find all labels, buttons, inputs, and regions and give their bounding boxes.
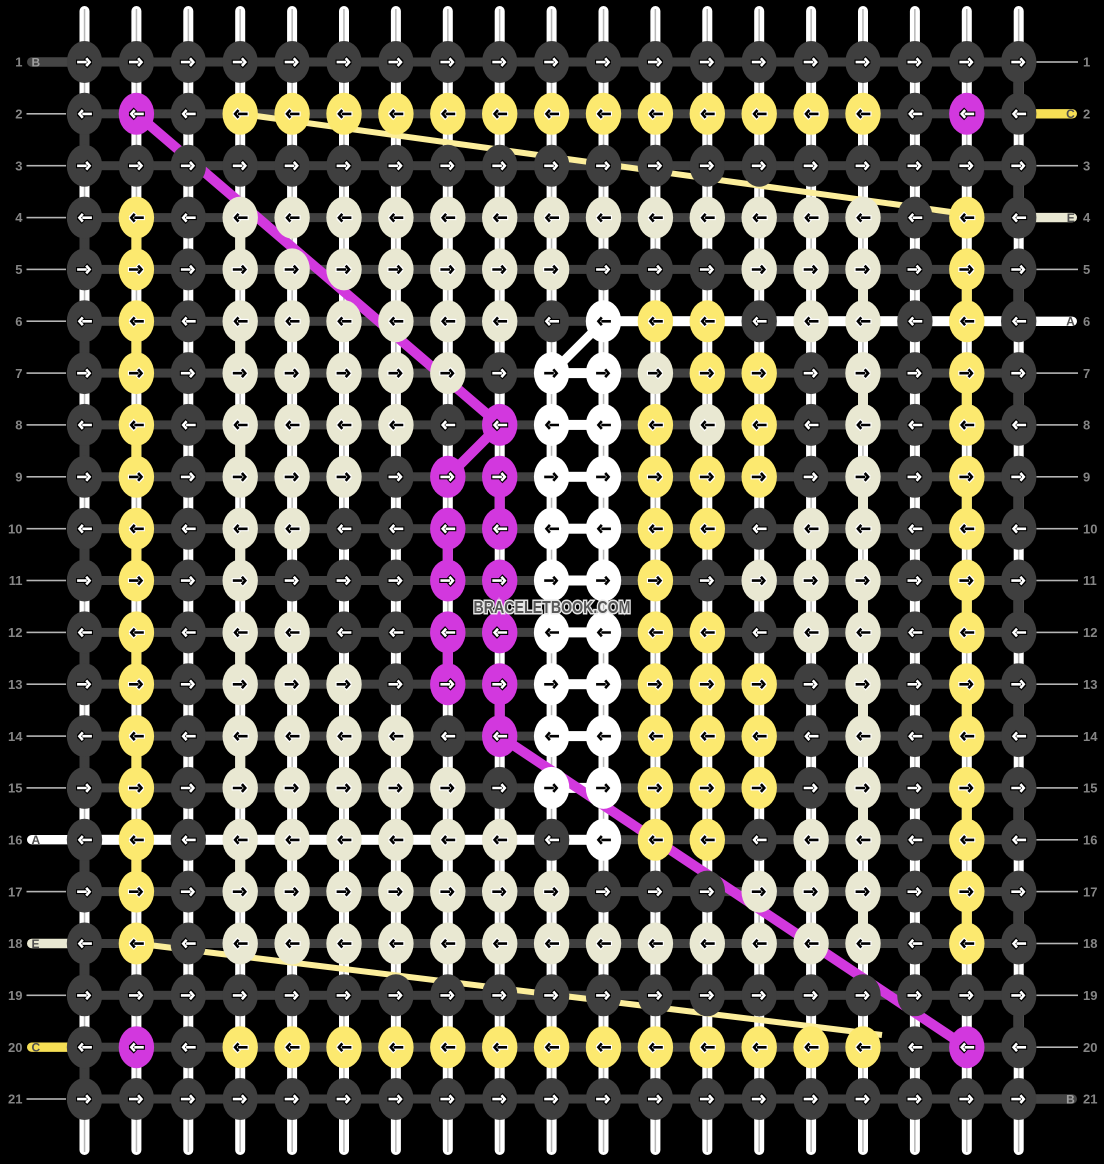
svg-text:A: A	[32, 833, 41, 847]
svg-text:16: 16	[1083, 833, 1097, 848]
svg-text:18: 18	[1083, 936, 1097, 951]
svg-text:9: 9	[1083, 470, 1090, 485]
svg-text:B: B	[1066, 1092, 1075, 1106]
svg-text:21: 21	[1083, 1092, 1097, 1107]
svg-text:BRACELETBOOK.COM: BRACELETBOOK.COM	[474, 597, 631, 617]
svg-text:15: 15	[1083, 781, 1097, 796]
svg-text:5: 5	[15, 262, 22, 277]
svg-text:3: 3	[1083, 158, 1090, 173]
svg-text:B: B	[32, 55, 41, 69]
svg-text:13: 13	[8, 677, 22, 692]
svg-text:14: 14	[1083, 729, 1098, 744]
svg-text:19: 19	[1083, 988, 1097, 1003]
svg-text:4: 4	[15, 210, 23, 225]
svg-text:20: 20	[1083, 1040, 1097, 1055]
svg-text:14: 14	[8, 729, 23, 744]
svg-text:10: 10	[8, 521, 22, 536]
svg-text:6: 6	[15, 314, 22, 329]
svg-text:12: 12	[1083, 625, 1097, 640]
svg-text:E: E	[1067, 211, 1075, 225]
svg-text:15: 15	[8, 781, 22, 796]
svg-text:4: 4	[1083, 210, 1091, 225]
svg-text:19: 19	[8, 988, 22, 1003]
svg-text:9: 9	[15, 470, 22, 485]
svg-text:21: 21	[8, 1092, 22, 1107]
svg-text:18: 18	[8, 936, 22, 951]
svg-text:11: 11	[9, 573, 23, 588]
svg-text:13: 13	[1083, 677, 1097, 692]
svg-text:17: 17	[8, 884, 22, 899]
svg-text:7: 7	[15, 366, 22, 381]
svg-text:7: 7	[1083, 366, 1090, 381]
svg-text:E: E	[32, 937, 40, 951]
svg-text:10: 10	[1083, 521, 1097, 536]
svg-text:20: 20	[8, 1040, 22, 1055]
svg-text:5: 5	[1083, 262, 1090, 277]
svg-text:12: 12	[8, 625, 22, 640]
svg-text:C: C	[32, 1041, 41, 1055]
svg-text:11: 11	[1083, 573, 1097, 588]
svg-text:16: 16	[8, 833, 22, 848]
svg-text:1: 1	[15, 55, 22, 70]
svg-text:3: 3	[15, 158, 22, 173]
svg-text:6: 6	[1083, 314, 1090, 329]
svg-text:17: 17	[1083, 884, 1097, 899]
svg-text:2: 2	[15, 107, 22, 122]
svg-text:1: 1	[1083, 55, 1090, 70]
svg-text:8: 8	[1083, 418, 1090, 433]
svg-text:C: C	[1066, 107, 1075, 121]
svg-text:8: 8	[15, 418, 22, 433]
svg-text:A: A	[1066, 315, 1075, 329]
svg-text:2: 2	[1083, 107, 1090, 122]
